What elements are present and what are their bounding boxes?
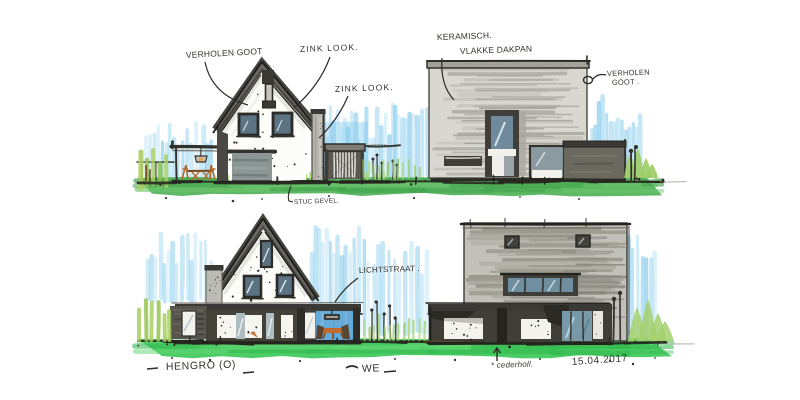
svg-text:WE: WE: [362, 362, 381, 375]
svg-text:* cederholl.: * cederholl.: [491, 360, 534, 370]
svg-text:ZINK LOOK.: ZINK LOOK.: [335, 82, 394, 94]
svg-text:STEDEN: STEDEN: [368, 143, 388, 149]
svg-text:VERHOLEN: VERHOLEN: [607, 68, 650, 78]
svg-text:HENGRO (O): HENGRO (O): [166, 359, 237, 373]
svg-text:GOOT .: GOOT .: [612, 77, 640, 87]
svg-text:ZINK LOOK.: ZINK LOOK.: [300, 42, 359, 54]
svg-text:KERAMISCH.: KERAMISCH.: [437, 30, 492, 42]
